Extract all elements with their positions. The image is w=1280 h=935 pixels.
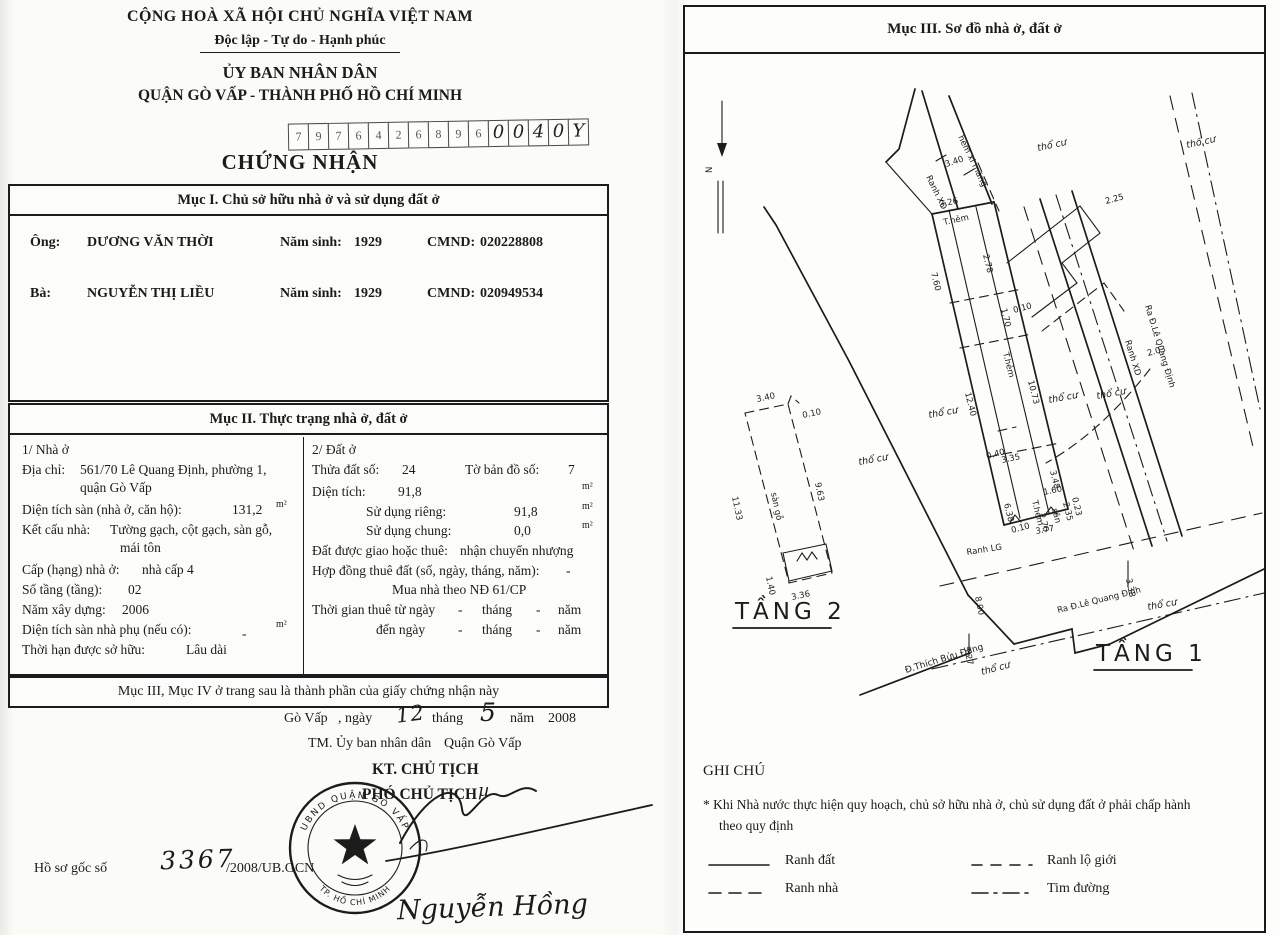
grade-value: nhà cấp 4 [142, 562, 194, 578]
floor-area-unit: m² [276, 499, 287, 510]
legend-label-ranh-lo-gioi: Ranh lộ giới [1047, 853, 1117, 869]
document-title: CHỨNG NHẬN [150, 150, 450, 175]
structure-line1: Tường gạch, cột gạch, sàn gỗ, [110, 522, 272, 538]
map-sheet-value: 7 [568, 462, 575, 478]
land-area-value: 91,8 [398, 484, 422, 500]
floor-area-value: 131,2 [232, 502, 262, 518]
serial-digit: 4 [368, 122, 389, 149]
serial-digit: 9 [308, 123, 329, 150]
shared-use-unit: m² [582, 520, 593, 531]
dim-label: 1.70 [998, 307, 1012, 328]
dim-label: 9.63 [812, 482, 826, 503]
owner2-id-label: CMND: [427, 286, 475, 302]
alley-label: T.hẻm [1000, 350, 1017, 379]
dim-label: 0.10 [802, 407, 823, 421]
floor1-title: TẦNG 1 [1095, 637, 1207, 667]
serial-digit: 6 [468, 120, 489, 147]
address-line2: quận Gò Vấp [80, 480, 152, 496]
floors-value: 02 [128, 582, 142, 598]
national-motto-line1: CỘNG HOÀ XÃ HỘI CHỦ NGHĨA VIỆT NAM [40, 8, 560, 26]
dim-label: 7.60 [928, 271, 942, 292]
serial-digit: 2 [388, 122, 409, 149]
land-type-label: thổ cư [980, 659, 1013, 678]
issue-year-value: 2008 [548, 711, 576, 727]
address-label: Địa chỉ: [22, 462, 65, 478]
dossier-label: Hồ sơ gốc số [34, 861, 107, 877]
setback-line-label: Ranh LG [966, 542, 1003, 557]
land-type-label: thổ cư [1048, 390, 1080, 406]
owner1-prefix: Ông: [30, 235, 60, 251]
owner2-prefix: Bà: [30, 286, 51, 302]
issuing-district: QUẬN GÒ VẤP - THÀNH PHỐ HỒ CHÍ MINH [40, 87, 560, 105]
dim-label: 1.60 [1043, 484, 1064, 498]
site-plan-page: Mục III. Sơ đồ nhà ở, đất ở N [683, 5, 1266, 933]
legend-label-ranh-nha: Ranh nhà [785, 881, 838, 897]
legend-label-tim-duong: Tim đường [1047, 881, 1109, 897]
private-use-value: 91,8 [514, 504, 538, 520]
serial-digit: 6 [348, 122, 369, 149]
legend-line-dashdot [970, 887, 1034, 899]
land-area-label: Diện tích: [312, 484, 366, 500]
dim-label: 2.78 [980, 253, 994, 274]
issue-month-label: tháng [432, 711, 463, 727]
national-motto-line2: Độc lập - Tự do - Hạnh phúc [40, 33, 560, 53]
lease-to-year-label: năm [558, 622, 581, 638]
serial-digit-handwritten: Y [568, 118, 589, 145]
allocation-value: nhận chuyển nhượng [460, 543, 573, 559]
lease-from-month-label: tháng [482, 602, 512, 618]
plot-label: Thửa đất số: [312, 462, 379, 478]
owner1-birth-year: 1929 [354, 235, 382, 251]
on-behalf-line: TM. Ủy ban nhân dân [308, 736, 431, 752]
owner2-birth-year: 1929 [354, 286, 382, 302]
issue-year-label: năm [510, 711, 534, 727]
serial-digit-handwritten: 0 [508, 119, 529, 146]
lease-contract-value: - [566, 563, 571, 579]
house-heading: 1/ Nhà ở [22, 442, 69, 458]
serial-digit: 8 [428, 121, 449, 148]
land-type-label: thổ cư [1147, 597, 1179, 613]
lease-from-month: - [536, 602, 541, 618]
floor-area-label: Diện tích sàn (nhà ở, căn hộ): [22, 502, 182, 518]
issue-day-label: , ngày [338, 711, 372, 727]
parcel-boundary [932, 202, 1068, 525]
signer-name: Nguyễn Hồng [397, 889, 589, 927]
land-type-label: thổ cư [1036, 137, 1068, 154]
legend-note-line1: * Khi Nhà nước thực hiện quy hoạch, chủ … [703, 797, 1190, 813]
north-arrow-icon: N [705, 101, 727, 233]
yard-label: sân [1049, 507, 1062, 524]
owner1-birth-label: Năm sinh: [280, 235, 342, 251]
land-type-label: thổ cư [858, 452, 890, 468]
floor2-title: TẦNG 2 [734, 595, 846, 625]
serial-digit: 7 [288, 123, 309, 150]
dim-label: 12.40 [962, 391, 978, 417]
floors-label: Số tầng (tầng): [22, 582, 102, 598]
serial-digit: 6 [408, 121, 429, 148]
lease-to-month: - [536, 622, 541, 638]
lease-to-day: - [458, 622, 463, 638]
north-label: N [705, 167, 715, 173]
shared-use-label: Sử dụng chung: [366, 523, 451, 539]
issue-month-handwritten: 5 [480, 698, 496, 727]
serial-digit: 9 [448, 120, 469, 147]
purchase-note: Mua nhà theo NĐ 61/CP [392, 582, 526, 598]
tenure-label: Thời hạn được sở hữu: [22, 642, 145, 658]
alley-label: T.hẻm [941, 212, 969, 228]
land-area-unit: m² [582, 481, 593, 492]
section3-note-box: Mục III, Mục IV ở trang sau là thành phầ… [8, 676, 609, 708]
land-heading: 2/ Đất ở [312, 442, 356, 458]
serial-number-boxes: 79764268960040Y [289, 118, 589, 150]
owner1-id-label: CMND: [427, 235, 475, 251]
legend-line-solid [707, 859, 771, 871]
owner2-id-number: 020949534 [480, 286, 543, 302]
owner2-name: NGUYỄN THỊ LIỀU [87, 286, 214, 302]
serial-digit-handwritten: 0 [488, 120, 509, 147]
section3-note: Mục III, Mục IV ở trang sau là thành phầ… [10, 678, 607, 706]
lease-contract-label: Hợp đồng thuê đất (số, ngày, tháng, năm)… [312, 563, 539, 579]
grade-label: Cấp (hạng) nhà ở: [22, 562, 120, 578]
plot-value: 24 [402, 462, 416, 478]
year-built-label: Năm xây dựng: [22, 602, 106, 618]
map-sheet-label: Tờ bản đồ số: [465, 462, 539, 478]
column-divider [303, 437, 304, 674]
year-built-value: 2006 [122, 602, 149, 618]
lease-from-label: Thời gian thuê từ ngày [312, 602, 435, 618]
legend-line-dashed-logioi [970, 859, 1034, 871]
cadastral-diagram: N [685, 54, 1264, 754]
section1-title: Mục I. Chủ sở hữu nhà ở và sử dụng đất ở [10, 186, 607, 216]
on-behalf-district: Quận Gò Vấp [444, 736, 522, 752]
tenure-value: Lâu dài [186, 642, 227, 658]
lease-from-year-label: năm [558, 602, 581, 618]
private-use-unit: m² [582, 501, 593, 512]
dim-label: 2.25 [1104, 192, 1125, 207]
dossier-number-handwritten: 3367 [160, 844, 237, 876]
structure-line2: mái tôn [120, 540, 161, 556]
structure-label: Kết cấu nhà: [22, 522, 90, 538]
section2-title: Mục II. Thực trạng nhà ở, đất ở [10, 405, 607, 435]
aux-floor-unit: m² [276, 619, 287, 630]
dim-label: 3.77 [1035, 524, 1055, 537]
address-line1: 561/70 Lê Quang Định, phường 1, [80, 462, 267, 478]
owner1-id-number: 020228808 [480, 235, 543, 251]
aux-floor-label: Diện tích sàn nhà phụ (nếu có): [22, 622, 191, 638]
serial-digit-handwritten: 0 [548, 119, 569, 146]
issue-place: Gò Vấp [284, 711, 328, 727]
serial-digit: 7 [328, 123, 349, 150]
dossier-number-printed: /2008/UB.GCN [226, 861, 314, 877]
site-plan-title: Mục III. Sơ đồ nhà ở, đất ở [685, 7, 1264, 54]
aux-floor-value: - [242, 626, 247, 642]
private-use-label: Sử dụng riêng: [366, 504, 446, 520]
dim-label: 3.40 [756, 391, 777, 405]
land-type-label: thổ cư [1185, 134, 1217, 151]
serial-digit-handwritten: 4 [528, 119, 549, 146]
dim-label: 1.40 [763, 576, 777, 597]
certificate-left-page: CỘNG HOÀ XÃ HỘI CHỦ NGHĨA VIỆT NAM Độc l… [0, 0, 662, 935]
issuing-authority: ỦY BAN NHÂN DÂN [40, 63, 560, 83]
owner2-birth-label: Năm sinh: [280, 286, 342, 302]
section1-box: Mục I. Chủ sở hữu nhà ở và sử dụng đất ở… [8, 184, 609, 402]
material-label: sàn gỗ [768, 491, 785, 521]
legend-note-line2: theo quy định [719, 818, 793, 834]
legend-label-ranh-dat: Ranh đất [785, 853, 835, 869]
land-type-label: thổ cư [928, 405, 960, 421]
dim-label: 0.10 [1012, 301, 1033, 316]
allocation-label: Đất được giao hoặc thuê: [312, 543, 448, 559]
shared-use-value: 0,0 [514, 523, 531, 539]
legend-line-dashed-nha [707, 887, 771, 899]
issue-day-handwritten: 12 [395, 700, 426, 727]
section2-box: Mục II. Thực trạng nhà ở, đất ở 1/ Nhà ở… [8, 403, 609, 676]
lease-from-day: - [458, 602, 463, 618]
lease-to-month-label: tháng [482, 622, 512, 638]
signature-strokes [370, 765, 660, 875]
dim-label: 3.40 [944, 154, 965, 169]
dim-label: 8.00 [972, 596, 986, 617]
west-boundary-lines [764, 89, 968, 595]
legend-title: GHI CHÚ [703, 763, 765, 780]
road-corridor-lines [1170, 93, 1260, 451]
owner1-name: DƯƠNG VĂN THỜI [87, 235, 214, 251]
lease-to-label: đến ngày [376, 622, 425, 638]
dim-label: 11.33 [729, 496, 744, 522]
